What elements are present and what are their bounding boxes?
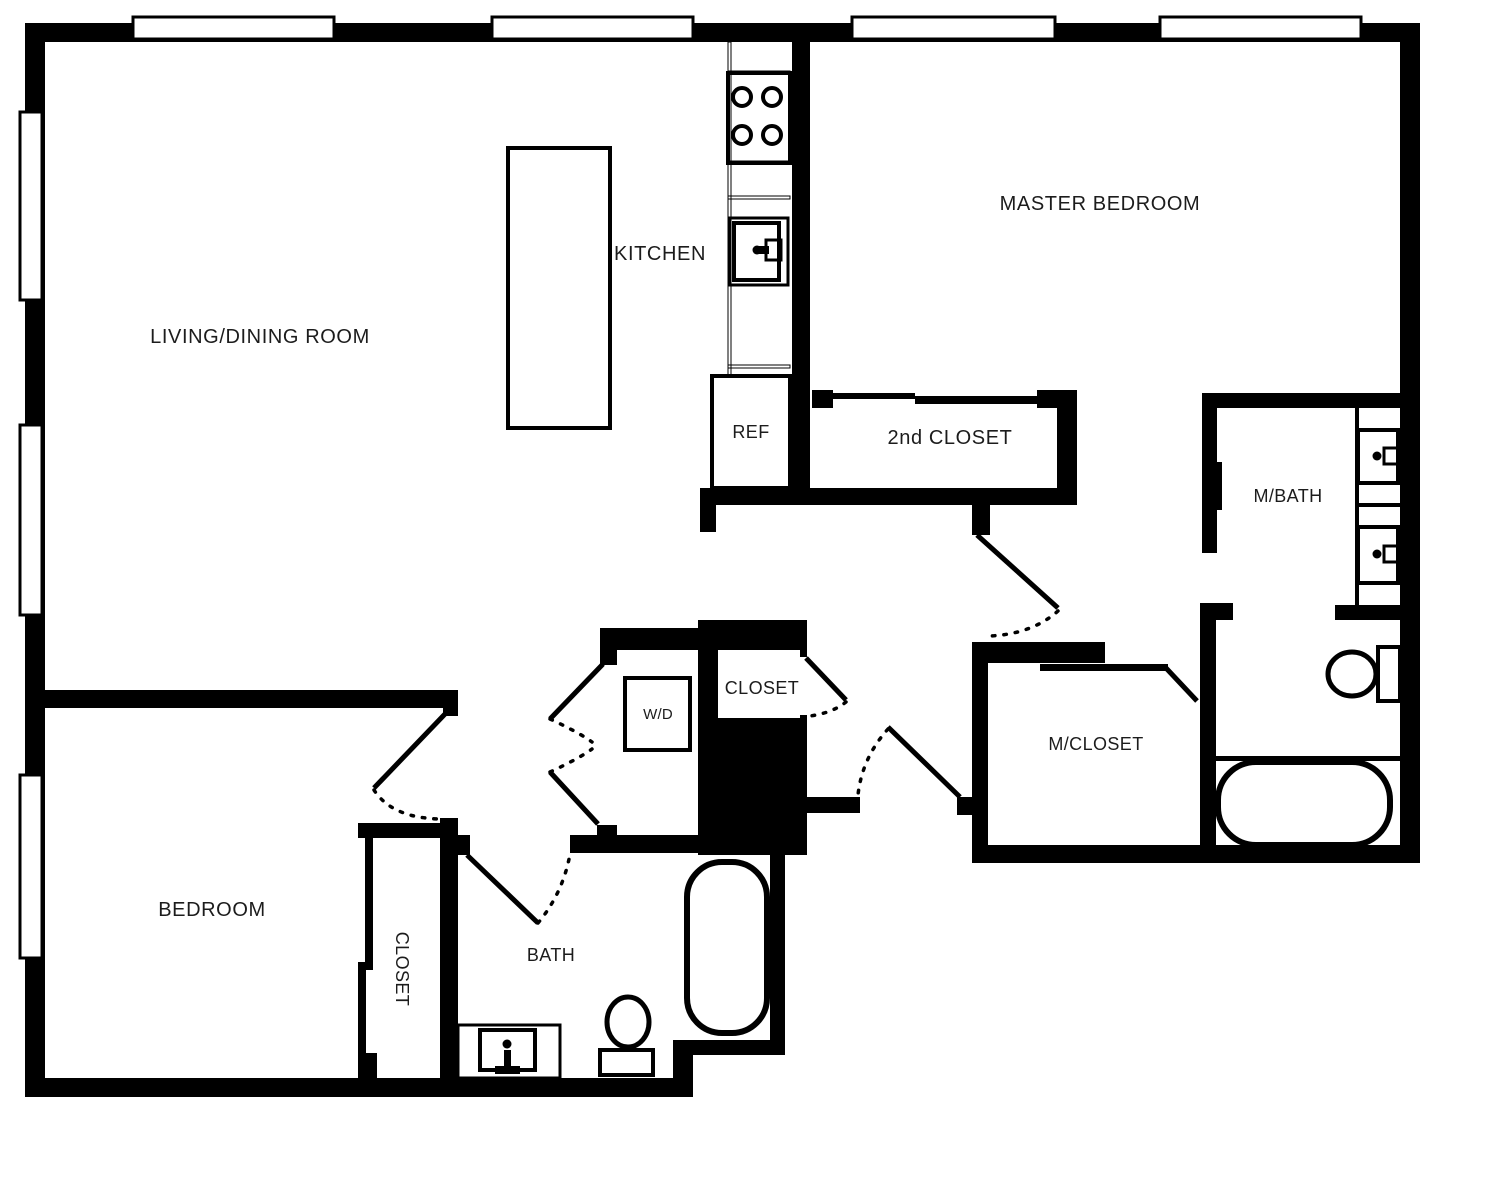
floorplan-page: LIVING/DINING ROOM KITCHEN MASTER BEDROO…: [0, 0, 1500, 1177]
hall-closet-door: [806, 658, 846, 716]
vanity-sink-icon: [1358, 430, 1398, 483]
window-icon: [492, 17, 693, 39]
washer-dryer-doors: [550, 664, 603, 824]
window-icon: [20, 425, 42, 615]
room-label-bath: BATH: [527, 945, 575, 965]
bath-door: [467, 854, 570, 923]
label-refrigerator: REF: [732, 422, 769, 442]
window-icon: [20, 775, 42, 958]
room-label-2nd-closet: 2nd CLOSET: [888, 427, 1013, 449]
kitchen-island-icon: [508, 148, 610, 428]
room-label-bedroom: BEDROOM: [158, 899, 266, 921]
master-closet-door: [1166, 668, 1197, 701]
vanity-sink-icon: [1358, 527, 1398, 583]
windows: [20, 17, 1361, 958]
master-bath-fixtures: [1218, 408, 1403, 845]
bathtub-icon: [687, 862, 767, 1033]
window-icon: [133, 17, 334, 39]
room-label-master-bedroom: MASTER BEDROOM: [1000, 193, 1201, 215]
hallway-door: [858, 727, 960, 797]
label-washer-dryer: W/D: [643, 706, 673, 723]
master-bathtub-icon: [1218, 762, 1390, 845]
master-bedroom-door: [977, 535, 1058, 636]
window-icon: [852, 17, 1055, 39]
room-label-hall-closet: CLOSET: [725, 678, 799, 698]
kitchen-sink-icon: [730, 218, 788, 285]
range-stove-icon: [728, 73, 790, 163]
toilet-icon: [1328, 647, 1400, 701]
room-label-bedroom-closet: CLOSET: [392, 932, 412, 1006]
room-label-master-closet: M/CLOSET: [1048, 734, 1143, 754]
floorplan-canvas: LIVING/DINING ROOM KITCHEN MASTER BEDROO…: [0, 0, 1500, 1177]
room-label-kitchen: KITCHEN: [614, 243, 706, 265]
bath-vanity-sink-icon: [458, 1025, 560, 1078]
room-labels: LIVING/DINING ROOM KITCHEN MASTER BEDROO…: [150, 193, 1322, 1006]
window-icon: [1160, 17, 1361, 39]
interior-walls: [40, 23, 1403, 1097]
bedroom-door: [374, 714, 445, 819]
toilet-icon: [600, 997, 653, 1075]
exterior-walls: [25, 23, 1420, 1097]
window-icon: [20, 112, 42, 300]
room-label-master-bath: M/BATH: [1253, 486, 1322, 506]
room-label-living-dining: LIVING/DINING ROOM: [150, 326, 370, 348]
